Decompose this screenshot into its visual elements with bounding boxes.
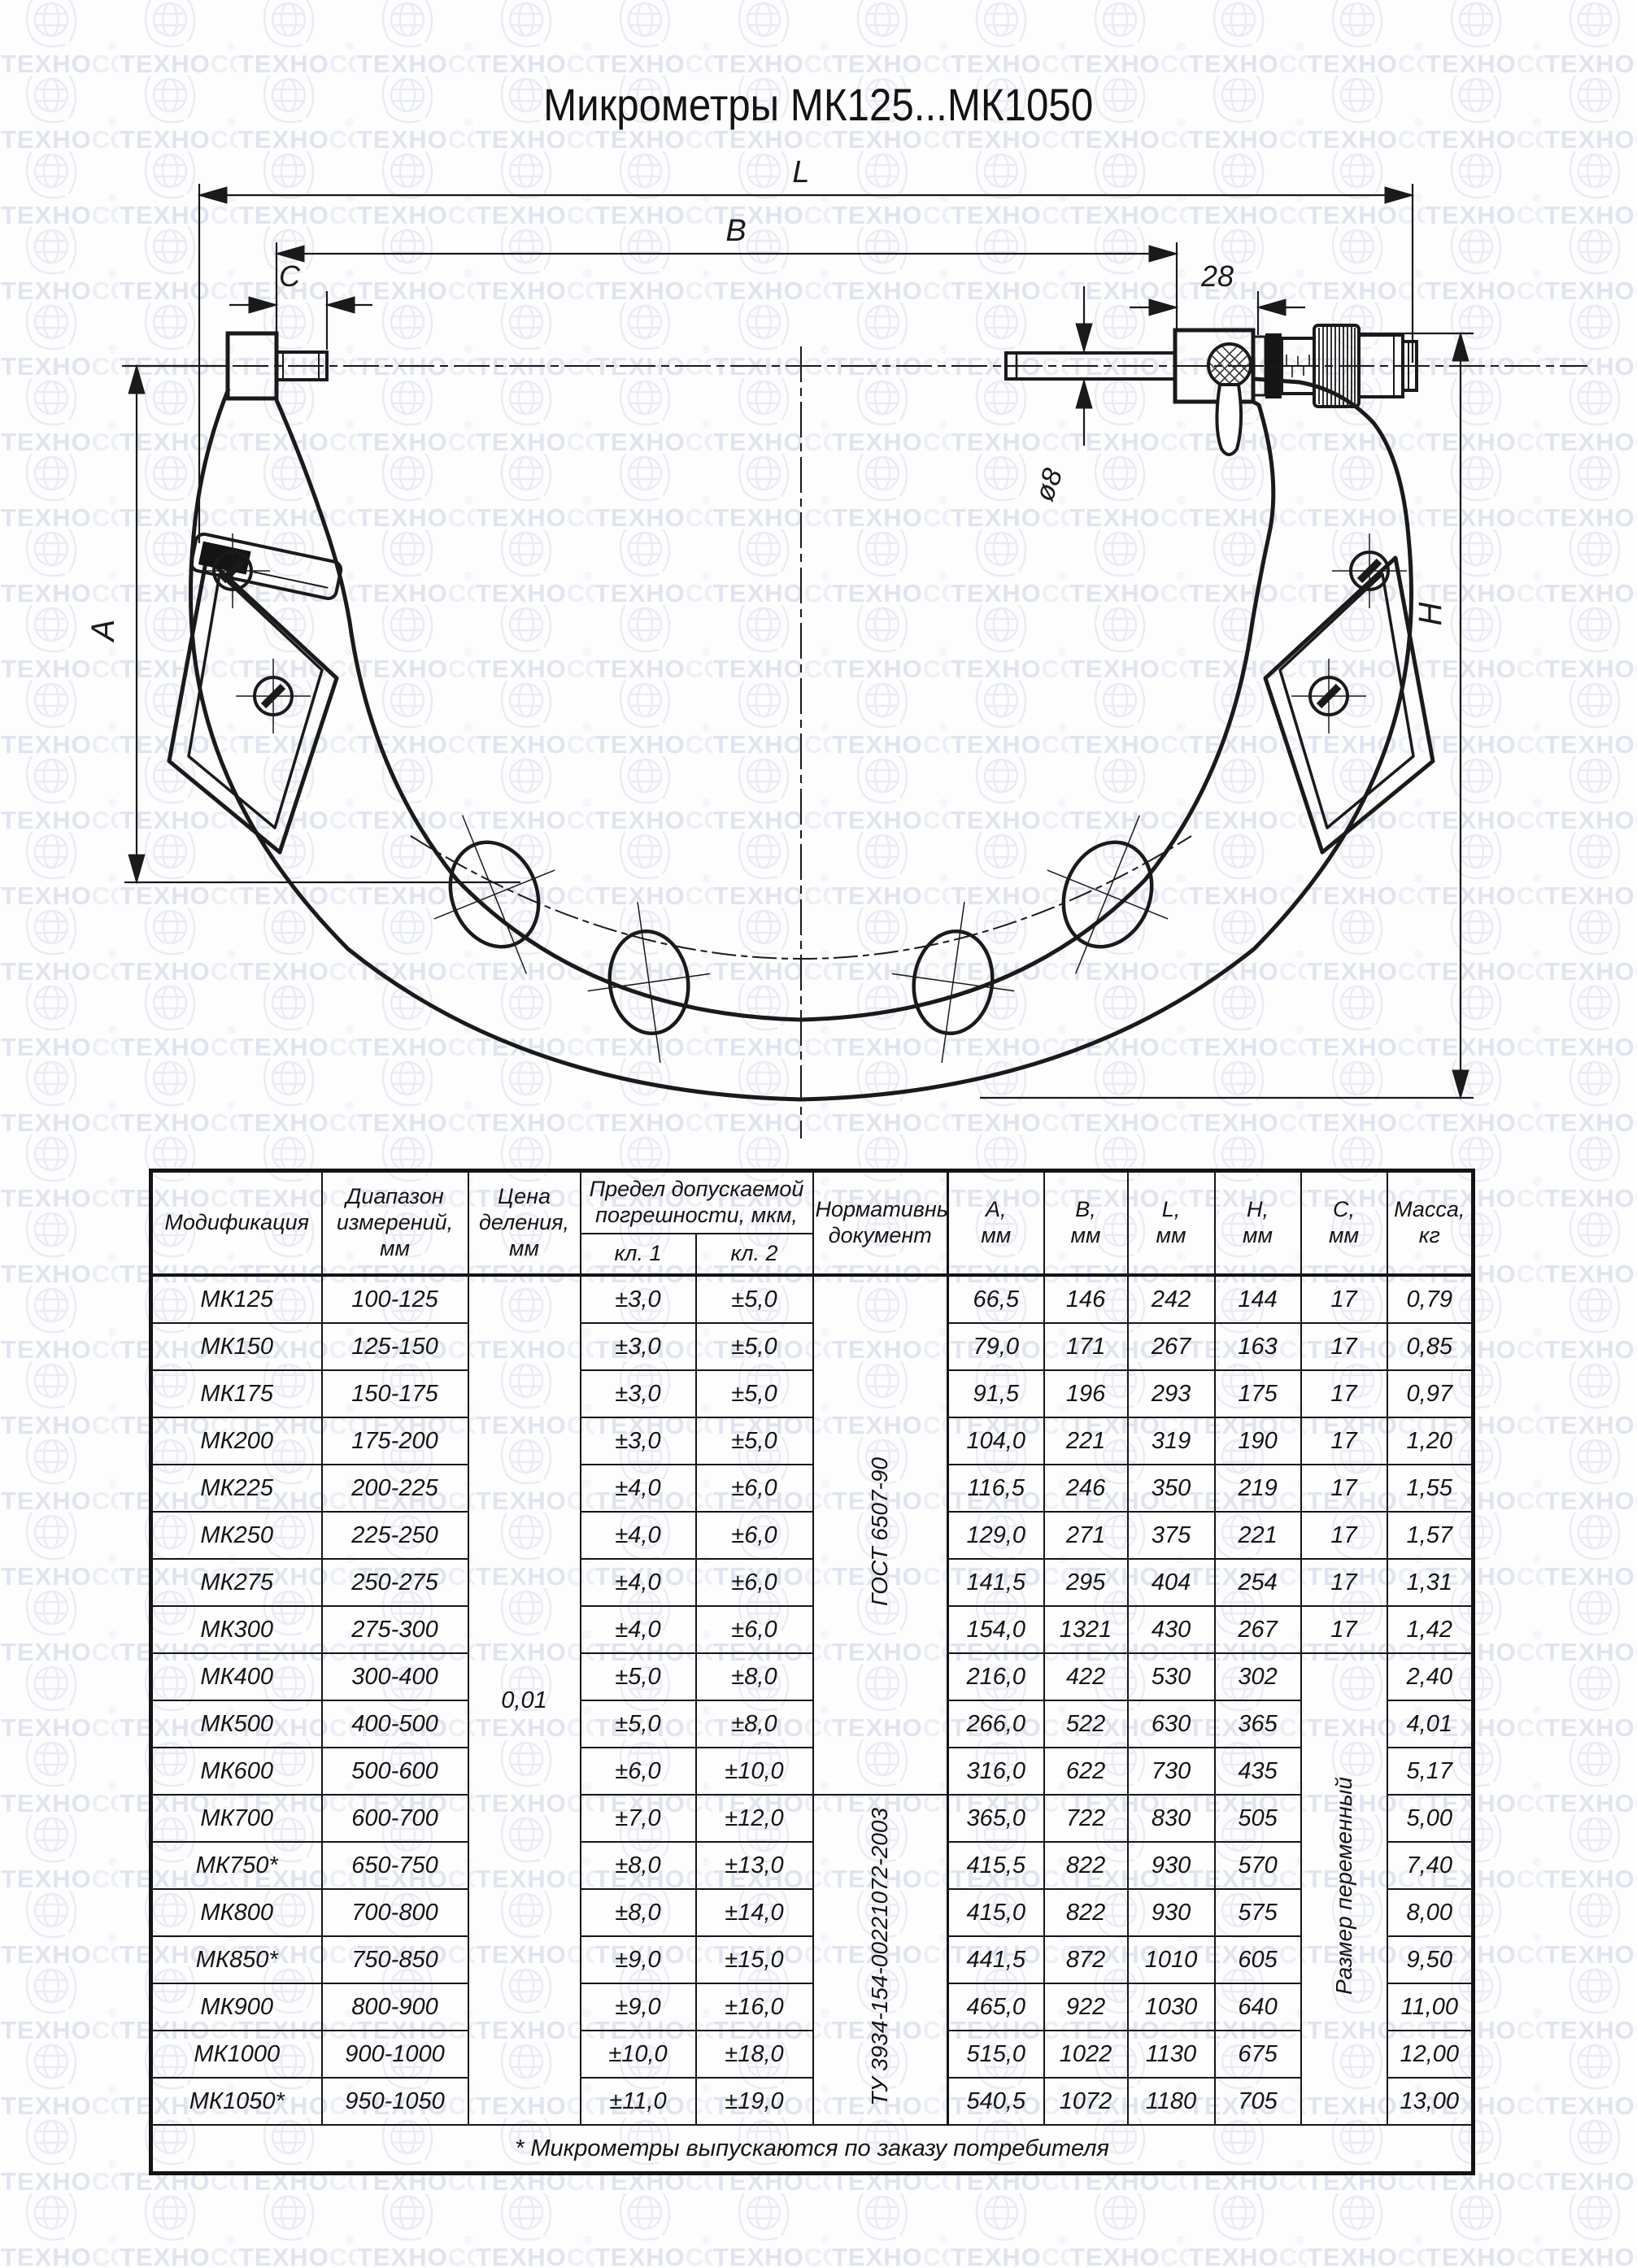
cell-mass: 5,17 bbox=[1387, 1748, 1474, 1795]
cell-class2: ±6,0 bbox=[696, 1606, 813, 1653]
cell-model: МК275 bbox=[151, 1559, 322, 1606]
label-B: B bbox=[725, 214, 746, 248]
cell-model: МК850* bbox=[151, 1936, 322, 1983]
cell-division-merged: 0,01 bbox=[468, 1275, 581, 2125]
cell-l: 730 bbox=[1128, 1748, 1215, 1795]
cell-model: МК200 bbox=[151, 1417, 322, 1465]
cell-b: 196 bbox=[1044, 1370, 1128, 1417]
cell-l: 1030 bbox=[1128, 1983, 1215, 2031]
header-mass: Масса, кг bbox=[1387, 1171, 1474, 1276]
table-row: МК500400-500±5,0±8,0266,05226303654,01 bbox=[151, 1700, 1474, 1748]
cell-b: 722 bbox=[1044, 1795, 1128, 1842]
cell-b: 246 bbox=[1044, 1465, 1128, 1512]
label-28: 28 bbox=[1200, 259, 1234, 293]
cell-a: 415,5 bbox=[948, 1842, 1044, 1889]
cell-b: 872 bbox=[1044, 1936, 1128, 1983]
cell-a: 66,5 bbox=[948, 1275, 1044, 1323]
cell-range: 400-500 bbox=[322, 1700, 468, 1748]
cell-mass: 1,20 bbox=[1387, 1417, 1474, 1465]
header-c: С, мм bbox=[1301, 1171, 1387, 1276]
cell-range: 600-700 bbox=[322, 1795, 468, 1842]
cell-b: 146 bbox=[1044, 1275, 1128, 1323]
cell-h: 267 bbox=[1215, 1606, 1301, 1653]
cell-l: 375 bbox=[1128, 1512, 1215, 1559]
cell-b: 1072 bbox=[1044, 2078, 1128, 2125]
table-row: МК225200-225±4,0±6,0116,5246350219171,55 bbox=[151, 1465, 1474, 1512]
cell-a: 415,0 bbox=[948, 1889, 1044, 1936]
footnote-row: * Микрометры выпускаются по заказу потре… bbox=[151, 2125, 1474, 2174]
cell-a: 116,5 bbox=[948, 1465, 1044, 1512]
cell-class2: ±16,0 bbox=[696, 1983, 813, 2031]
header-h: Н, мм bbox=[1215, 1171, 1301, 1276]
cell-mass: 0,97 bbox=[1387, 1370, 1474, 1417]
table-row: МК250225-250±4,0±6,0129,0271375221171,57 bbox=[151, 1512, 1474, 1559]
cell-range: 700-800 bbox=[322, 1889, 468, 1936]
cell-mass: 0,79 bbox=[1387, 1275, 1474, 1323]
cell-a: 91,5 bbox=[948, 1370, 1044, 1417]
brand-plate bbox=[189, 533, 342, 600]
table-row: МК800700-800±8,0±14,0415,08229305758,00 bbox=[151, 1889, 1474, 1936]
cell-a: 316,0 bbox=[948, 1748, 1044, 1795]
cell-c: 17 bbox=[1301, 1417, 1387, 1465]
cell-a: 141,5 bbox=[948, 1559, 1044, 1606]
left-grip-plate bbox=[169, 558, 337, 852]
spec-table: Модификация Диапазон измерений, мм Цена … bbox=[149, 1169, 1475, 2175]
cell-model: МК125 bbox=[151, 1275, 322, 1323]
cell-class1: ±8,0 bbox=[581, 1889, 696, 1936]
dimension-B bbox=[276, 242, 1177, 350]
cell-model: МК900 bbox=[151, 1983, 322, 2031]
cell-mass: 1,31 bbox=[1387, 1559, 1474, 1606]
cell-h: 570 bbox=[1215, 1842, 1301, 1889]
table-footnote: * Микрометры выпускаются по заказу потре… bbox=[151, 2125, 1474, 2174]
cell-class1: ±9,0 bbox=[581, 1983, 696, 2031]
cell-document-tu-text: ТУ 3934-154-00221072-2003 bbox=[869, 1808, 891, 2106]
cell-b: 295 bbox=[1044, 1559, 1128, 1606]
cell-h: 605 bbox=[1215, 1936, 1301, 1983]
cell-model: МК600 bbox=[151, 1748, 322, 1795]
micrometer-drawing: L B C 28 A Н ø8 bbox=[0, 0, 1637, 1169]
cell-c: 17 bbox=[1301, 1275, 1387, 1323]
cell-mass: 8,00 bbox=[1387, 1889, 1474, 1936]
cell-h: 175 bbox=[1215, 1370, 1301, 1417]
label-L: L bbox=[792, 155, 809, 189]
header-error-limit: Предел допускаемой погрешности, мкм, bbox=[581, 1171, 813, 1234]
cell-l: 430 bbox=[1128, 1606, 1215, 1653]
cell-class2: ±6,0 bbox=[696, 1465, 813, 1512]
cell-h: 675 bbox=[1215, 2031, 1301, 2078]
cell-model: МК225 bbox=[151, 1465, 322, 1512]
cell-h: 705 bbox=[1215, 2078, 1301, 2125]
cell-class2: ±8,0 bbox=[696, 1653, 813, 1700]
cell-class1: ±3,0 bbox=[581, 1275, 696, 1323]
datasheet-page: ТЕХНОСОЮЗ ® Микрометры МК125...МК1050 bbox=[0, 0, 1637, 2268]
cell-b: 1321 bbox=[1044, 1606, 1128, 1653]
cell-l: 1010 bbox=[1128, 1936, 1215, 1983]
header-modification: Модификация bbox=[151, 1171, 322, 1276]
lock-lever bbox=[1205, 329, 1254, 455]
cell-l: 350 bbox=[1128, 1465, 1215, 1512]
cell-mass: 7,40 bbox=[1387, 1842, 1474, 1889]
cell-class1: ±3,0 bbox=[581, 1370, 696, 1417]
table-row: МК275250-275±4,0±6,0141,5295404254171,31 bbox=[151, 1559, 1474, 1606]
cell-class2: ±15,0 bbox=[696, 1936, 813, 1983]
table-row: МК125100-1250,01±3,0±5,0ГОСТ 6507-9066,5… bbox=[151, 1275, 1474, 1323]
table-row: МК1050*950-1050±11,0±19,0540,51072118070… bbox=[151, 2078, 1474, 2125]
page-title: Микрометры МК125...МК1050 bbox=[0, 78, 1637, 131]
cell-class2: ±5,0 bbox=[696, 1275, 813, 1323]
header-class1: кл. 1 bbox=[581, 1234, 696, 1275]
cell-mass: 13,00 bbox=[1387, 2078, 1474, 2125]
cell-model: МК750* bbox=[151, 1842, 322, 1889]
table-row: МК600500-600±6,0±10,0316,06227304355,17 bbox=[151, 1748, 1474, 1795]
cell-a: 540,5 bbox=[948, 2078, 1044, 2125]
cell-c-variable-text: Размер переменный bbox=[1333, 1777, 1356, 1995]
cell-range: 125-150 bbox=[322, 1323, 468, 1370]
cell-class2: ±10,0 bbox=[696, 1748, 813, 1795]
cell-range: 950-1050 bbox=[322, 2078, 468, 2125]
table-row: МК300275-300±4,0±6,0154,01321430267171,4… bbox=[151, 1606, 1474, 1653]
cell-h: 435 bbox=[1215, 1748, 1301, 1795]
cell-b: 221 bbox=[1044, 1417, 1128, 1465]
cell-l: 404 bbox=[1128, 1559, 1215, 1606]
header-range: Диапазон измерений, мм bbox=[322, 1171, 468, 1276]
cell-mass: 5,00 bbox=[1387, 1795, 1474, 1842]
cell-h: 219 bbox=[1215, 1465, 1301, 1512]
table-row: МК200175-200±3,0±5,0104,0221319190171,20 bbox=[151, 1417, 1474, 1465]
cell-class1: ±4,0 bbox=[581, 1512, 696, 1559]
cell-l: 930 bbox=[1128, 1889, 1215, 1936]
cell-a: 79,0 bbox=[948, 1323, 1044, 1370]
cell-b: 171 bbox=[1044, 1323, 1128, 1370]
cell-h: 221 bbox=[1215, 1512, 1301, 1559]
cell-h: 190 bbox=[1215, 1417, 1301, 1465]
cell-mass: 12,00 bbox=[1387, 2031, 1474, 2078]
cell-a: 129,0 bbox=[948, 1512, 1044, 1559]
cell-document-tu: ТУ 3934-154-00221072-2003 bbox=[813, 1795, 948, 2125]
cell-model: МК800 bbox=[151, 1889, 322, 1936]
cell-class1: ±3,0 bbox=[581, 1323, 696, 1370]
cell-a: 154,0 bbox=[948, 1606, 1044, 1653]
cell-class2: ±5,0 bbox=[696, 1417, 813, 1465]
cell-a: 365,0 bbox=[948, 1795, 1044, 1842]
cell-l: 630 bbox=[1128, 1700, 1215, 1748]
cell-c: 17 bbox=[1301, 1606, 1387, 1653]
cell-c: 17 bbox=[1301, 1512, 1387, 1559]
table-row: МК750*650-750±8,0±13,0415,58229305707,40 bbox=[151, 1842, 1474, 1889]
cell-c: 17 bbox=[1301, 1370, 1387, 1417]
cell-range: 250-275 bbox=[322, 1559, 468, 1606]
cell-class2: ±6,0 bbox=[696, 1559, 813, 1606]
cell-b: 271 bbox=[1044, 1512, 1128, 1559]
cell-mass: 1,55 bbox=[1387, 1465, 1474, 1512]
table-row: МК150125-150±3,0±5,079,0171267163170,85 bbox=[151, 1323, 1474, 1370]
cell-h: 144 bbox=[1215, 1275, 1301, 1323]
cell-range: 750-850 bbox=[322, 1936, 468, 1983]
centerlines bbox=[122, 346, 1587, 1138]
cell-b: 1022 bbox=[1044, 2031, 1128, 2078]
cell-h: 640 bbox=[1215, 1983, 1301, 2031]
cell-document-gost: ГОСТ 6507-90 bbox=[813, 1275, 948, 1795]
cell-class1: ±3,0 bbox=[581, 1417, 696, 1465]
cell-c-variable: Размер переменный bbox=[1301, 1653, 1387, 2125]
cell-c: 17 bbox=[1301, 1559, 1387, 1606]
header-b: В, мм bbox=[1044, 1171, 1128, 1276]
cell-a: 465,0 bbox=[948, 1983, 1044, 2031]
label-d8: ø8 bbox=[1029, 464, 1069, 505]
cell-mass: 1,57 bbox=[1387, 1512, 1474, 1559]
cell-class2: ±19,0 bbox=[696, 2078, 813, 2125]
cell-h: 505 bbox=[1215, 1795, 1301, 1842]
cell-range: 275-300 bbox=[322, 1606, 468, 1653]
cell-a: 266,0 bbox=[948, 1700, 1044, 1748]
cell-mass: 1,42 bbox=[1387, 1606, 1474, 1653]
cell-range: 300-400 bbox=[322, 1653, 468, 1700]
cell-mass: 11,00 bbox=[1387, 1983, 1474, 2031]
cell-h: 302 bbox=[1215, 1653, 1301, 1700]
cell-range: 650-750 bbox=[322, 1842, 468, 1889]
cell-range: 175-200 bbox=[322, 1417, 468, 1465]
cell-b: 422 bbox=[1044, 1653, 1128, 1700]
cell-class2: ±18,0 bbox=[696, 2031, 813, 2078]
header-l: L, мм bbox=[1128, 1171, 1215, 1276]
cell-class2: ±14,0 bbox=[696, 1889, 813, 1936]
cell-l: 267 bbox=[1128, 1323, 1215, 1370]
cell-b: 522 bbox=[1044, 1700, 1128, 1748]
header-division: Цена деления, мм bbox=[468, 1171, 581, 1276]
label-H: Н bbox=[1413, 602, 1448, 625]
table-row: МК700600-700±7,0±12,0ТУ 3934-154-0022107… bbox=[151, 1795, 1474, 1842]
cell-l: 930 bbox=[1128, 1842, 1215, 1889]
cell-range: 150-175 bbox=[322, 1370, 468, 1417]
cell-h: 365 bbox=[1215, 1700, 1301, 1748]
cell-h: 163 bbox=[1215, 1323, 1301, 1370]
cell-range: 200-225 bbox=[322, 1465, 468, 1512]
cell-c: 17 bbox=[1301, 1323, 1387, 1370]
dimension-C bbox=[229, 291, 372, 350]
cell-a: 104,0 bbox=[948, 1417, 1044, 1465]
cell-a: 441,5 bbox=[948, 1936, 1044, 1983]
cell-range: 900-1000 bbox=[322, 2031, 468, 2078]
cell-class1: ±4,0 bbox=[581, 1465, 696, 1512]
cell-class2: ±6,0 bbox=[696, 1512, 813, 1559]
cell-b: 822 bbox=[1044, 1889, 1128, 1936]
cell-model: МК400 bbox=[151, 1653, 322, 1700]
cell-range: 100-125 bbox=[322, 1275, 468, 1323]
header-class2: кл. 2 bbox=[696, 1234, 813, 1275]
cell-range: 800-900 bbox=[322, 1983, 468, 2031]
cell-l: 242 bbox=[1128, 1275, 1215, 1323]
cell-class1: ±5,0 bbox=[581, 1653, 696, 1700]
cell-a: 515,0 bbox=[948, 2031, 1044, 2078]
cell-model: МК175 bbox=[151, 1370, 322, 1417]
cell-class1: ±7,0 bbox=[581, 1795, 696, 1842]
table-row: МК175150-175±3,0±5,091,5196293175170,97 bbox=[151, 1370, 1474, 1417]
cell-class1: ±10,0 bbox=[581, 2031, 696, 2078]
cell-class2: ±8,0 bbox=[696, 1700, 813, 1748]
label-A: A bbox=[85, 620, 121, 643]
cell-b: 822 bbox=[1044, 1842, 1128, 1889]
cell-mass: 4,01 bbox=[1387, 1700, 1474, 1748]
cell-h: 575 bbox=[1215, 1889, 1301, 1936]
cell-c: 17 bbox=[1301, 1465, 1387, 1512]
label-C: C bbox=[279, 259, 301, 293]
cell-l: 1130 bbox=[1128, 2031, 1215, 2078]
cell-range: 225-250 bbox=[322, 1512, 468, 1559]
cell-l: 1180 bbox=[1128, 2078, 1215, 2125]
header-a: А, мм bbox=[948, 1171, 1044, 1276]
cell-class1: ±4,0 bbox=[581, 1606, 696, 1653]
cell-l: 319 bbox=[1128, 1417, 1215, 1465]
cell-mass: 2,40 bbox=[1387, 1653, 1474, 1700]
cell-h: 254 bbox=[1215, 1559, 1301, 1606]
right-grip-plate bbox=[1265, 558, 1433, 852]
cell-class1: ±9,0 bbox=[581, 1936, 696, 1983]
cell-class1: ±5,0 bbox=[581, 1700, 696, 1748]
table-row: МК400300-400±5,0±8,0216,0422530302Размер… bbox=[151, 1653, 1474, 1700]
cell-l: 830 bbox=[1128, 1795, 1215, 1842]
cell-model: МК700 bbox=[151, 1795, 322, 1842]
cell-l: 293 bbox=[1128, 1370, 1215, 1417]
cell-model: МК250 bbox=[151, 1512, 322, 1559]
cell-b: 922 bbox=[1044, 1983, 1128, 2031]
cell-class2: ±5,0 bbox=[696, 1323, 813, 1370]
header-document: Нормативный документ bbox=[813, 1171, 948, 1276]
cell-range: 500-600 bbox=[322, 1748, 468, 1795]
cell-class2: ±5,0 bbox=[696, 1370, 813, 1417]
cell-model: МК150 bbox=[151, 1323, 322, 1370]
cell-class1: ±6,0 bbox=[581, 1748, 696, 1795]
cell-model: МК1000 bbox=[151, 2031, 322, 2078]
table-row: МК850*750-850±9,0±15,0441,587210106059,5… bbox=[151, 1936, 1474, 1983]
cell-l: 530 bbox=[1128, 1653, 1215, 1700]
cell-class1: ±11,0 bbox=[581, 2078, 696, 2125]
dimension-A bbox=[124, 366, 520, 882]
cell-class1: ±4,0 bbox=[581, 1559, 696, 1606]
table-row: МК1000900-1000±10,0±18,0515,010221130675… bbox=[151, 2031, 1474, 2078]
cell-mass: 0,85 bbox=[1387, 1323, 1474, 1370]
cell-model: МК1050* bbox=[151, 2078, 322, 2125]
cell-model: МК500 bbox=[151, 1700, 322, 1748]
cell-mass: 9,50 bbox=[1387, 1936, 1474, 1983]
cell-class1: ±8,0 bbox=[581, 1842, 696, 1889]
cell-b: 622 bbox=[1044, 1748, 1128, 1795]
cell-model: МК300 bbox=[151, 1606, 322, 1653]
cell-a: 216,0 bbox=[948, 1653, 1044, 1700]
cell-document-gost-text: ГОСТ 6507-90 bbox=[869, 1457, 891, 1606]
cell-class2: ±13,0 bbox=[696, 1842, 813, 1889]
cell-class2: ±12,0 bbox=[696, 1795, 813, 1842]
table-row: МК900800-900±9,0±16,0465,0922103064011,0… bbox=[151, 1983, 1474, 2031]
